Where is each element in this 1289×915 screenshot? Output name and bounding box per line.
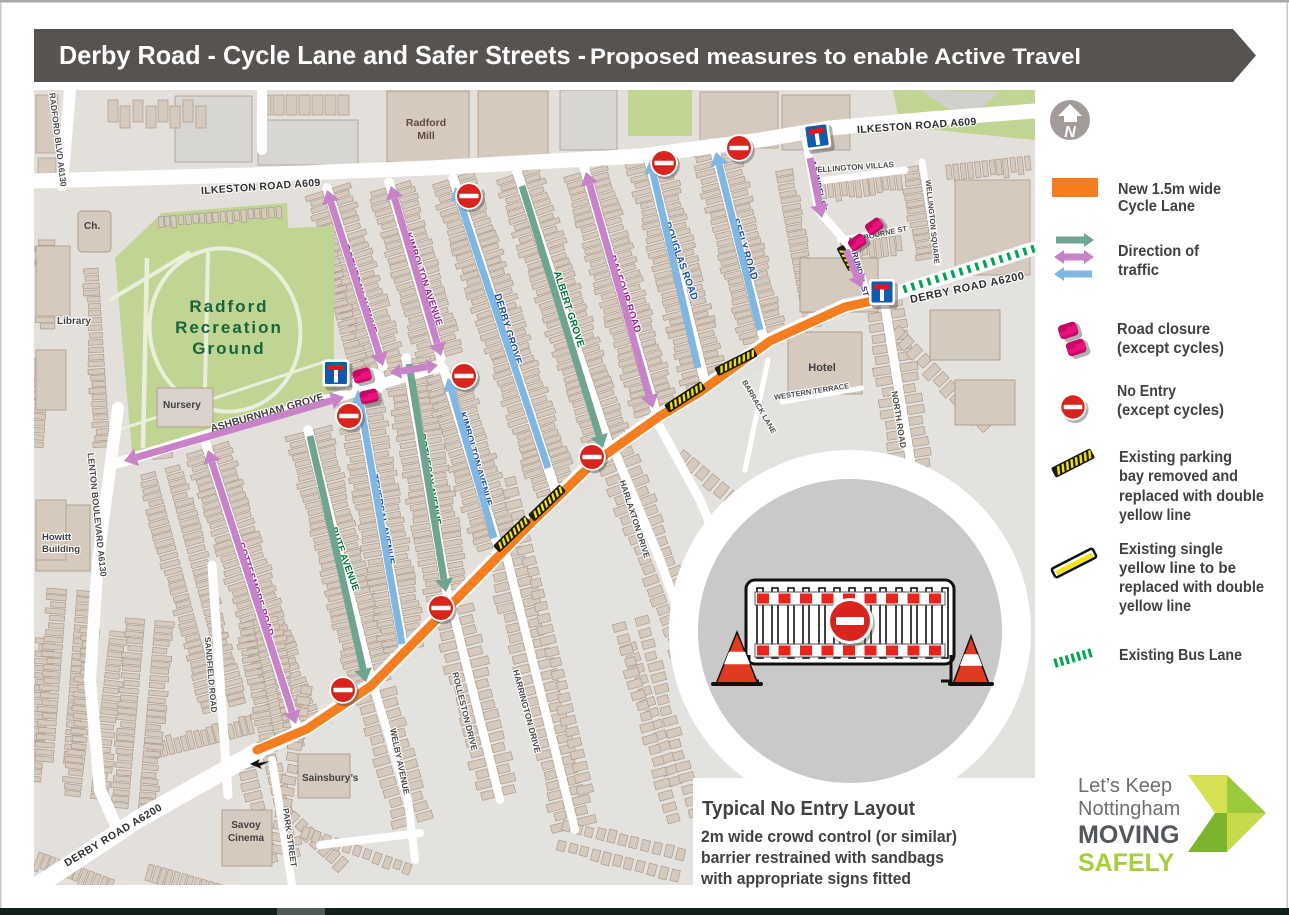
svg-text:(except cycles): (except cycles) [1117, 340, 1224, 357]
svg-text:Recreation: Recreation [175, 318, 283, 337]
svg-text:Direction of: Direction of [1118, 243, 1200, 260]
svg-text:Savoy: Savoy [231, 820, 261, 831]
svg-text:Ch.: Ch. [84, 221, 100, 232]
svg-text:Nursery: Nursery [163, 400, 201, 411]
svg-text:2m wide crowd control (or simi: 2m wide crowd control (or similar) [701, 827, 957, 846]
svg-text:barrier restrained with sandba: barrier restrained with sandbags [701, 848, 944, 867]
svg-text:Road closure: Road closure [1117, 321, 1210, 338]
svg-text:Ground: Ground [192, 339, 265, 358]
svg-text:New 1.5m wide: New 1.5m wide [1118, 181, 1221, 198]
svg-text:Library: Library [57, 316, 91, 327]
svg-text:traffic: traffic [1118, 262, 1159, 279]
svg-text:replaced with double: replaced with double [1119, 488, 1264, 505]
svg-text:Building: Building [42, 544, 80, 555]
svg-text:bay removed and: bay removed and [1119, 468, 1238, 485]
svg-text:yellow line: yellow line [1119, 507, 1191, 524]
svg-text:Existing parking: Existing parking [1119, 449, 1232, 466]
svg-text:Hotel: Hotel [808, 362, 836, 374]
svg-text:SAFELY: SAFELY [1078, 849, 1175, 877]
svg-text:Mill: Mill [417, 130, 435, 142]
svg-text:Radford: Radford [189, 297, 268, 316]
svg-text:Howitt: Howitt [42, 532, 72, 543]
svg-text:No Entry: No Entry [1117, 383, 1176, 400]
svg-text:N: N [1064, 124, 1076, 141]
svg-text:Typical No Entry Layout: Typical No Entry Layout [702, 798, 915, 820]
svg-text:Derby Road - Cycle Lane and Sa: Derby Road - Cycle Lane and Safer Street… [59, 40, 1081, 70]
svg-text:Cycle Lane: Cycle Lane [1118, 198, 1195, 215]
svg-text:yellow line to be: yellow line to be [1119, 560, 1236, 577]
svg-text:Existing single: Existing single [1119, 541, 1223, 558]
svg-text:Let’s Keep: Let’s Keep [1078, 775, 1172, 797]
svg-text:Existing Bus Lane: Existing Bus Lane [1119, 647, 1242, 664]
svg-text:MOVING: MOVING [1078, 821, 1179, 849]
svg-text:yellow line: yellow line [1119, 598, 1191, 615]
svg-text:(except cycles): (except cycles) [1117, 402, 1224, 419]
svg-text:Cinema: Cinema [228, 833, 265, 844]
svg-text:Radford: Radford [406, 117, 446, 129]
svg-text:Nottingham: Nottingham [1078, 798, 1180, 820]
svg-text:with appropriate signs fitted: with appropriate signs fitted [700, 869, 911, 888]
svg-text:replaced with double: replaced with double [1119, 579, 1264, 596]
svg-text:Sainsbury’s: Sainsbury’s [302, 773, 359, 784]
